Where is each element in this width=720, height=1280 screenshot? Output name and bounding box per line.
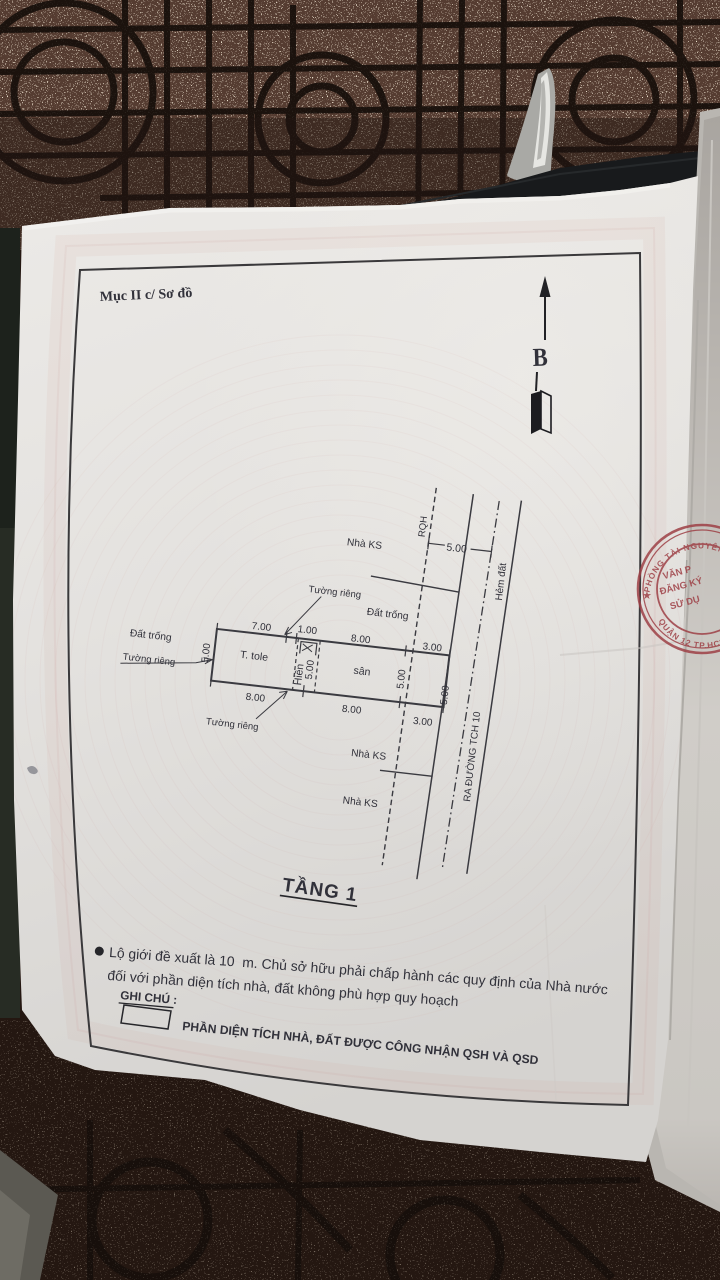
svg-text:8.00: 8.00 xyxy=(350,633,371,646)
svg-text:1.00: 1.00 xyxy=(297,624,318,637)
svg-text:★: ★ xyxy=(642,590,652,602)
svg-text:sân: sân xyxy=(353,665,371,679)
svg-text:7.00: 7.00 xyxy=(251,621,272,634)
svg-text:5.00: 5.00 xyxy=(446,541,468,555)
svg-text:5.00: 5.00 xyxy=(304,659,317,680)
svg-text:B: B xyxy=(532,342,548,372)
svg-text:8.00: 8.00 xyxy=(245,692,266,705)
svg-text:5.00: 5.00 xyxy=(200,642,213,663)
svg-text:5.00: 5.00 xyxy=(395,668,408,689)
svg-text:5.00: 5.00 xyxy=(439,685,452,706)
svg-text:8.00: 8.00 xyxy=(341,704,362,717)
svg-text:3.00: 3.00 xyxy=(412,716,433,729)
svg-text:3.00: 3.00 xyxy=(422,641,443,654)
